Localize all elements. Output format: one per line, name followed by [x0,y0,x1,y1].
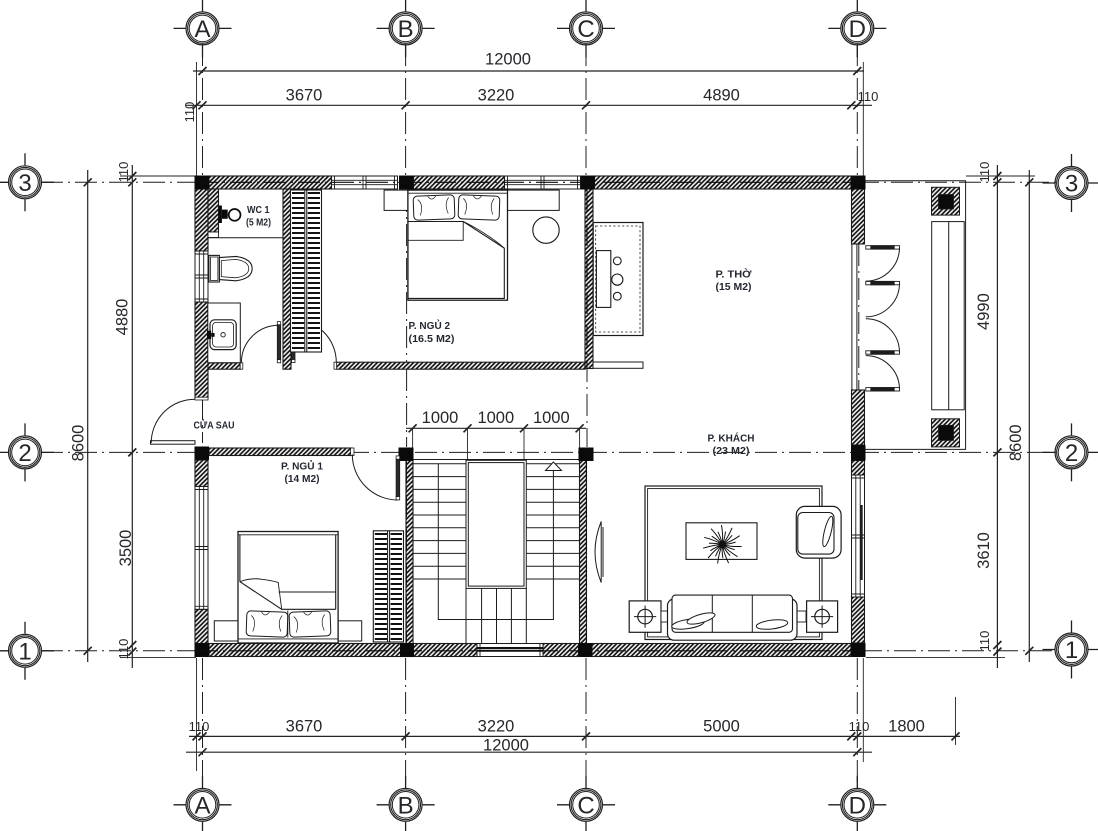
svg-text:(16.5 M2): (16.5 M2) [409,334,455,345]
svg-text:1000: 1000 [533,409,570,427]
svg-text:(14 M2): (14 M2) [285,474,320,485]
svg-text:CỬA SAU: CỬA SAU [194,420,235,432]
svg-text:C: C [577,16,594,43]
svg-text:D: D [849,16,866,43]
svg-text:(23 M2): (23 M2) [713,446,750,457]
svg-text:A: A [194,792,210,819]
svg-text:3220: 3220 [478,718,515,736]
svg-text:110: 110 [116,639,131,660]
svg-text:4890: 4890 [703,87,740,105]
svg-text:110: 110 [858,89,879,104]
svg-text:1: 1 [18,638,31,665]
svg-text:B: B [398,792,414,819]
svg-text:(5 M2): (5 M2) [246,218,271,229]
svg-text:P. NGỦ 2: P. NGỦ 2 [409,320,451,332]
svg-text:8600: 8600 [70,425,88,462]
svg-text:3: 3 [18,170,31,197]
svg-text:3670: 3670 [286,718,323,736]
svg-text:110: 110 [849,719,870,734]
svg-text:110: 110 [182,102,197,123]
svg-text:3670: 3670 [286,87,323,105]
svg-text:P. KHÁCH: P. KHÁCH [708,433,755,445]
svg-text:1800: 1800 [888,718,925,736]
svg-text:5000: 5000 [703,718,740,736]
svg-text:2: 2 [1065,440,1078,467]
svg-text:3220: 3220 [478,87,515,105]
svg-text:110: 110 [977,162,992,183]
svg-text:B: B [398,16,414,43]
svg-text:2: 2 [18,440,31,467]
svg-text:110: 110 [116,162,131,183]
svg-text:D: D [849,792,866,819]
svg-text:1000: 1000 [422,409,459,427]
svg-text:110: 110 [189,719,210,734]
svg-text:A: A [194,16,210,43]
svg-text:8600: 8600 [1007,424,1025,461]
svg-text:12000: 12000 [483,737,529,755]
svg-text:12000: 12000 [485,51,531,69]
svg-text:C: C [577,792,594,819]
svg-text:3: 3 [1065,171,1078,198]
svg-text:WC 1: WC 1 [247,205,270,216]
svg-text:110: 110 [977,631,992,652]
svg-text:1000: 1000 [477,409,514,427]
svg-text:3500: 3500 [117,530,135,567]
svg-text:P. NGỦ 1: P. NGỦ 1 [281,461,324,473]
svg-text:3610: 3610 [975,532,993,569]
svg-text:P. THỜ: P. THỜ [716,269,753,281]
svg-text:(15 M2): (15 M2) [716,282,752,293]
svg-text:1: 1 [1065,637,1078,664]
svg-text:4880: 4880 [114,299,132,336]
svg-text:4990: 4990 [975,293,993,330]
